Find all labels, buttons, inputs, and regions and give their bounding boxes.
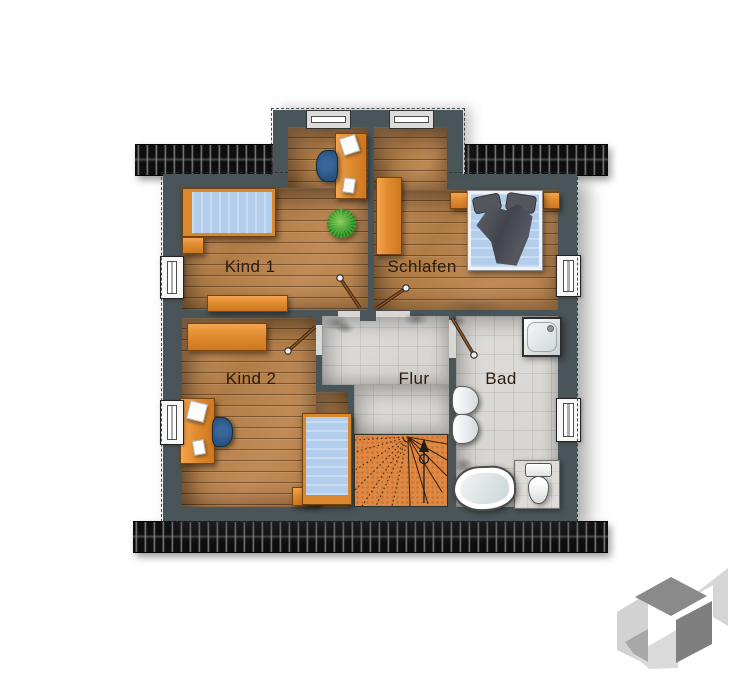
cube-logo-icon xyxy=(607,562,735,674)
room-label-kind2: Kind 2 xyxy=(226,369,277,389)
shower xyxy=(522,317,562,357)
winder-staircase xyxy=(354,434,448,507)
window-bad-right xyxy=(556,398,581,442)
door-opening-kind1 xyxy=(338,310,360,317)
floor-flur-upper xyxy=(322,316,449,385)
window-kind2-left xyxy=(160,400,184,445)
window-schlafen-right xyxy=(556,255,581,297)
nightstand-right xyxy=(543,192,560,209)
room-label-bad: Bad xyxy=(485,369,516,389)
wardrobe-schlafen xyxy=(376,177,402,255)
door-opening-kind2 xyxy=(316,325,322,355)
window-dormer-right xyxy=(389,110,434,129)
mattress xyxy=(306,417,348,495)
notepad xyxy=(192,439,206,456)
mattress xyxy=(192,192,272,233)
chair-kind1 xyxy=(316,150,338,182)
notepad xyxy=(342,177,356,194)
door-opening-bad xyxy=(449,320,456,358)
wall-stub-flur xyxy=(360,310,376,321)
floor-plan-canvas: Kind 1 Schlafen Kind 2 Flur Bad xyxy=(0,0,750,700)
contour-line xyxy=(161,172,162,522)
floor-flur-lower xyxy=(354,385,449,434)
contour-line xyxy=(577,172,578,522)
door-opening-schlafen xyxy=(376,310,410,317)
window-kind1-left xyxy=(160,256,184,299)
chair-kind2 xyxy=(212,417,233,447)
room-label-flur: Flur xyxy=(399,369,430,389)
room-label-kind1: Kind 1 xyxy=(225,257,276,277)
bed-kind1 xyxy=(182,188,276,237)
roof-strip-top-right xyxy=(465,144,608,176)
window-dormer-left xyxy=(306,110,351,129)
double-bed-schlafen xyxy=(467,190,543,271)
nightstand-left xyxy=(450,192,468,209)
potted-plant xyxy=(327,209,356,238)
roof-strip-bottom xyxy=(133,521,608,553)
roof-strip-top-left xyxy=(135,144,275,176)
bed-kind2 xyxy=(302,413,352,505)
toilet-tank xyxy=(525,463,552,477)
sideboard-kind1 xyxy=(207,295,288,312)
room-label-schlafen: Schlafen xyxy=(387,257,456,277)
sideboard-kind2 xyxy=(187,323,267,351)
nightstand-kind1 xyxy=(182,237,204,254)
